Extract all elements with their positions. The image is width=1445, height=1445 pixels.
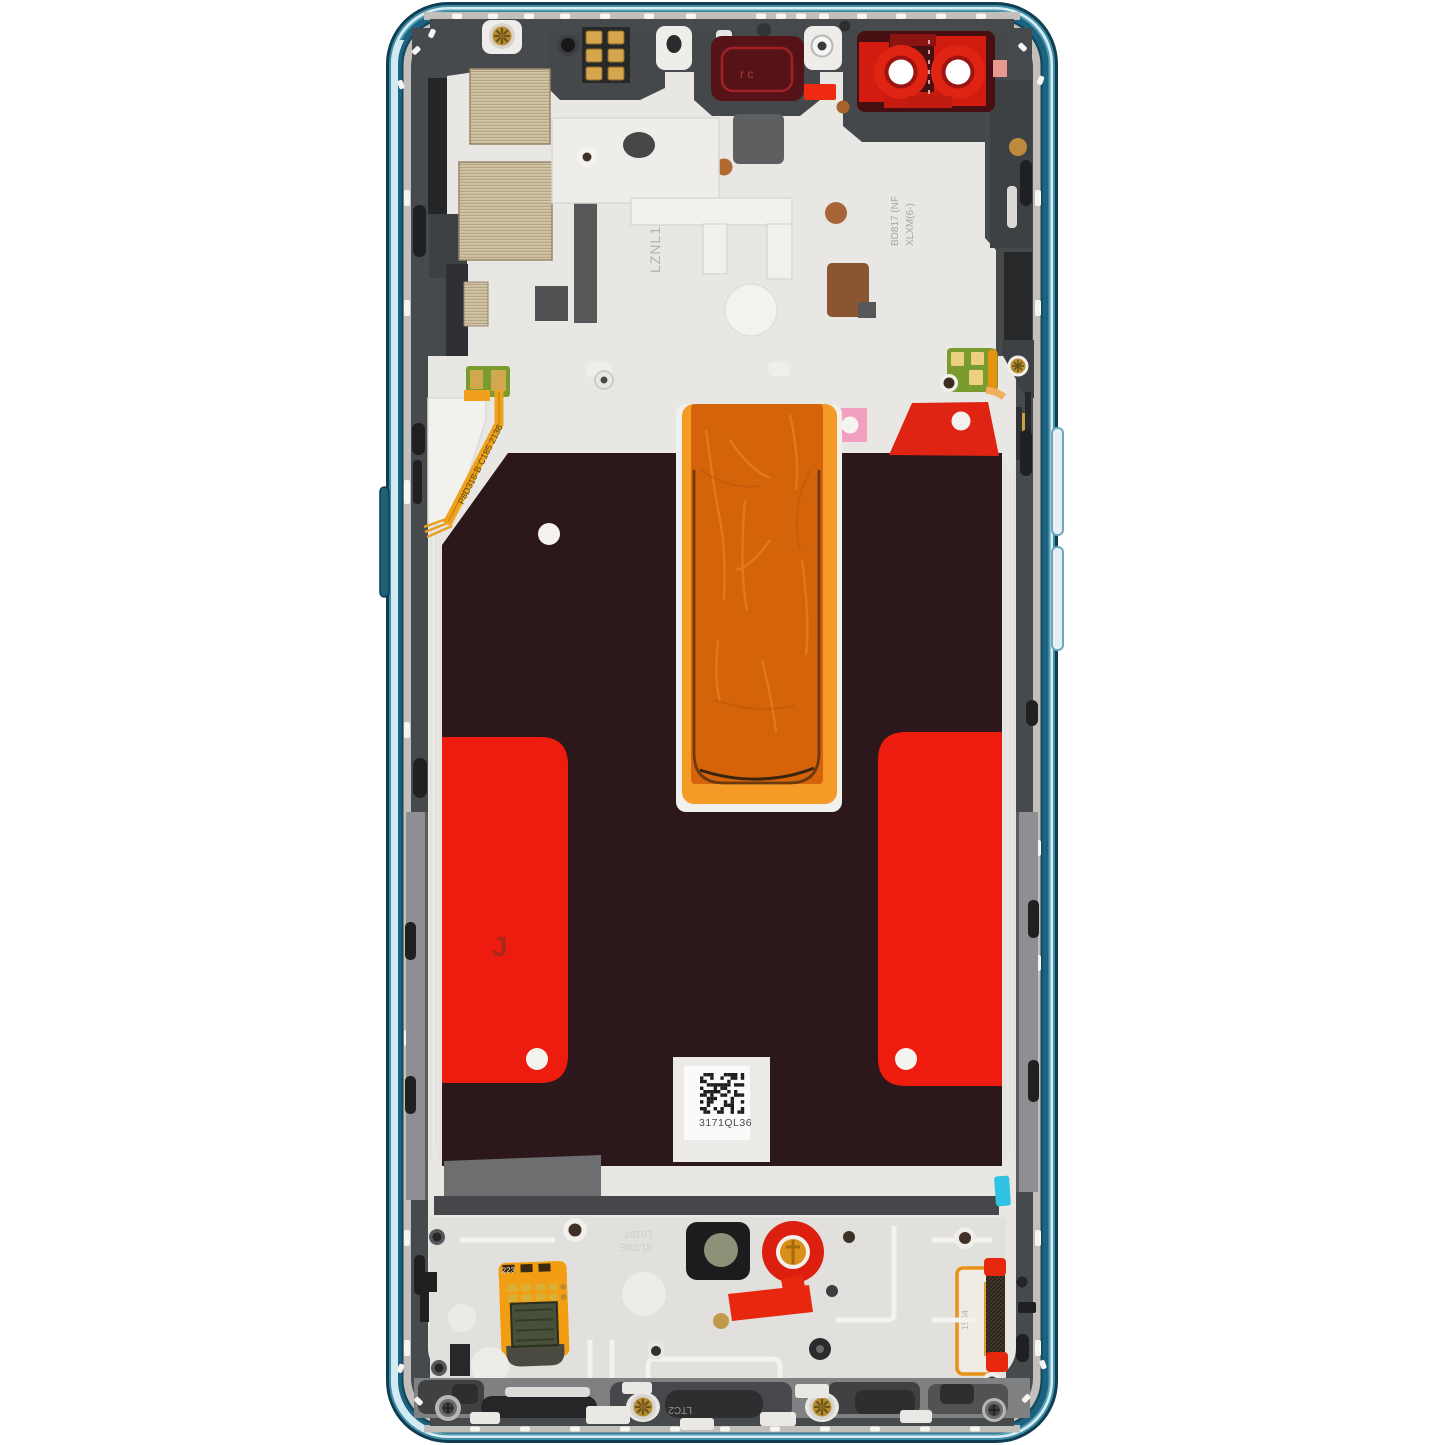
svg-text:LTC2: LTC2	[668, 1404, 692, 1415]
svg-text:223: 223	[501, 1266, 515, 1275]
svg-text:3171QL36: 3171QL36	[699, 1117, 752, 1129]
svg-text:J: J	[492, 931, 508, 962]
svg-text:LZNL1: LZNL1	[647, 226, 663, 273]
svg-text:XLXM(6-): XLXM(6-)	[905, 203, 916, 246]
svg-text:BD817 (NF: BD817 (NF	[890, 196, 901, 246]
svg-text:r c: r c	[740, 67, 753, 81]
svg-text:81/Z8E: 81/Z8E	[619, 1241, 652, 1252]
svg-text:L0107: L0107	[624, 1228, 652, 1239]
